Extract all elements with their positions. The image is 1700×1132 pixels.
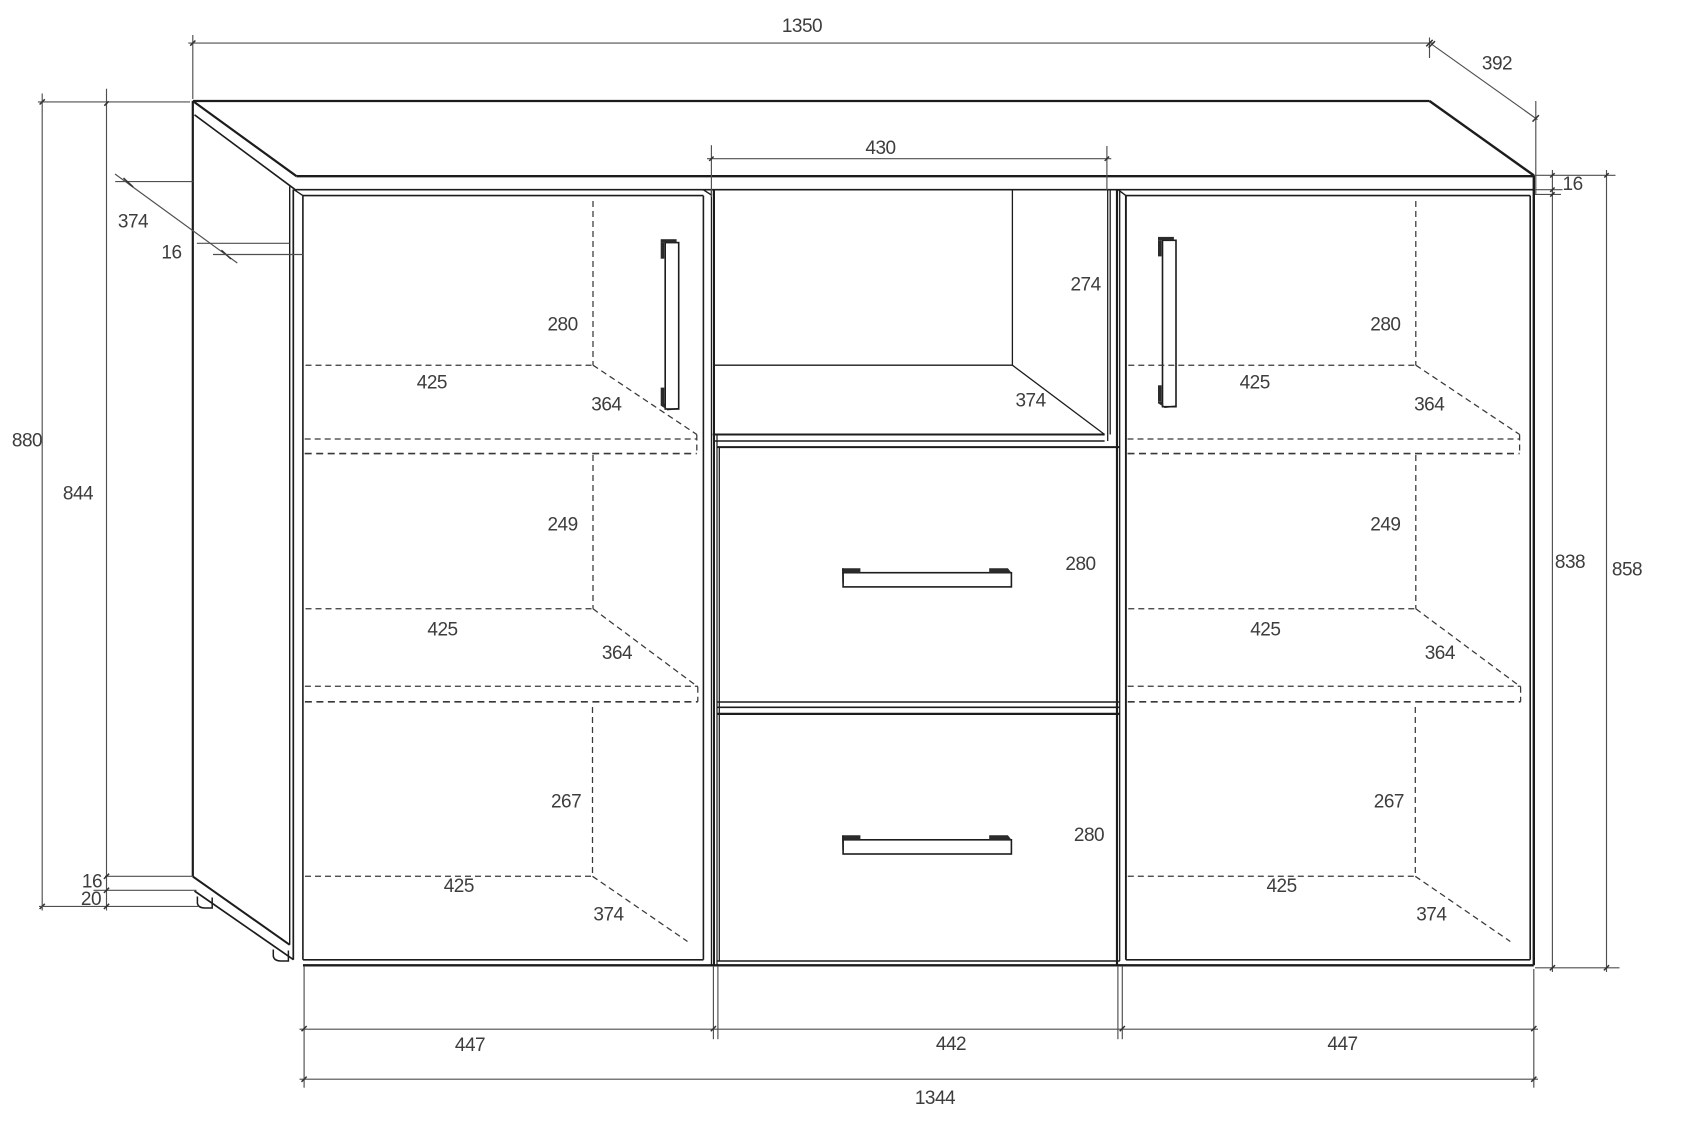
svg-text:1344: 1344 xyxy=(915,1088,956,1109)
svg-text:267: 267 xyxy=(551,792,581,813)
svg-text:280: 280 xyxy=(1065,554,1095,575)
svg-text:858: 858 xyxy=(1612,560,1642,581)
svg-text:374: 374 xyxy=(593,905,624,926)
svg-text:838: 838 xyxy=(1555,552,1585,573)
svg-text:844: 844 xyxy=(63,484,94,505)
svg-text:374: 374 xyxy=(1015,391,1046,412)
svg-text:880: 880 xyxy=(12,431,42,452)
svg-text:392: 392 xyxy=(1482,54,1512,75)
svg-text:374: 374 xyxy=(118,211,149,232)
svg-text:425: 425 xyxy=(444,876,474,897)
svg-text:274: 274 xyxy=(1070,275,1101,296)
svg-text:280: 280 xyxy=(1370,315,1400,336)
svg-text:425: 425 xyxy=(1250,620,1280,641)
svg-text:442: 442 xyxy=(936,1034,966,1055)
svg-text:425: 425 xyxy=(417,373,447,394)
svg-text:249: 249 xyxy=(547,515,577,536)
svg-text:280: 280 xyxy=(547,315,577,336)
svg-text:20: 20 xyxy=(81,889,101,910)
svg-text:267: 267 xyxy=(1374,792,1404,813)
svg-text:16: 16 xyxy=(161,243,181,264)
svg-text:364: 364 xyxy=(602,643,633,664)
svg-text:374: 374 xyxy=(1416,905,1447,926)
svg-text:425: 425 xyxy=(427,620,457,641)
svg-text:280: 280 xyxy=(1074,825,1104,846)
svg-text:364: 364 xyxy=(591,395,622,416)
svg-text:1350: 1350 xyxy=(782,16,822,37)
svg-text:425: 425 xyxy=(1240,373,1270,394)
svg-text:16: 16 xyxy=(1563,174,1583,195)
svg-text:447: 447 xyxy=(1327,1034,1357,1055)
svg-text:447: 447 xyxy=(455,1035,485,1056)
svg-text:364: 364 xyxy=(1425,643,1456,664)
svg-text:249: 249 xyxy=(1370,515,1400,536)
svg-text:364: 364 xyxy=(1414,395,1445,416)
svg-text:430: 430 xyxy=(865,138,895,159)
svg-text:425: 425 xyxy=(1266,876,1296,897)
